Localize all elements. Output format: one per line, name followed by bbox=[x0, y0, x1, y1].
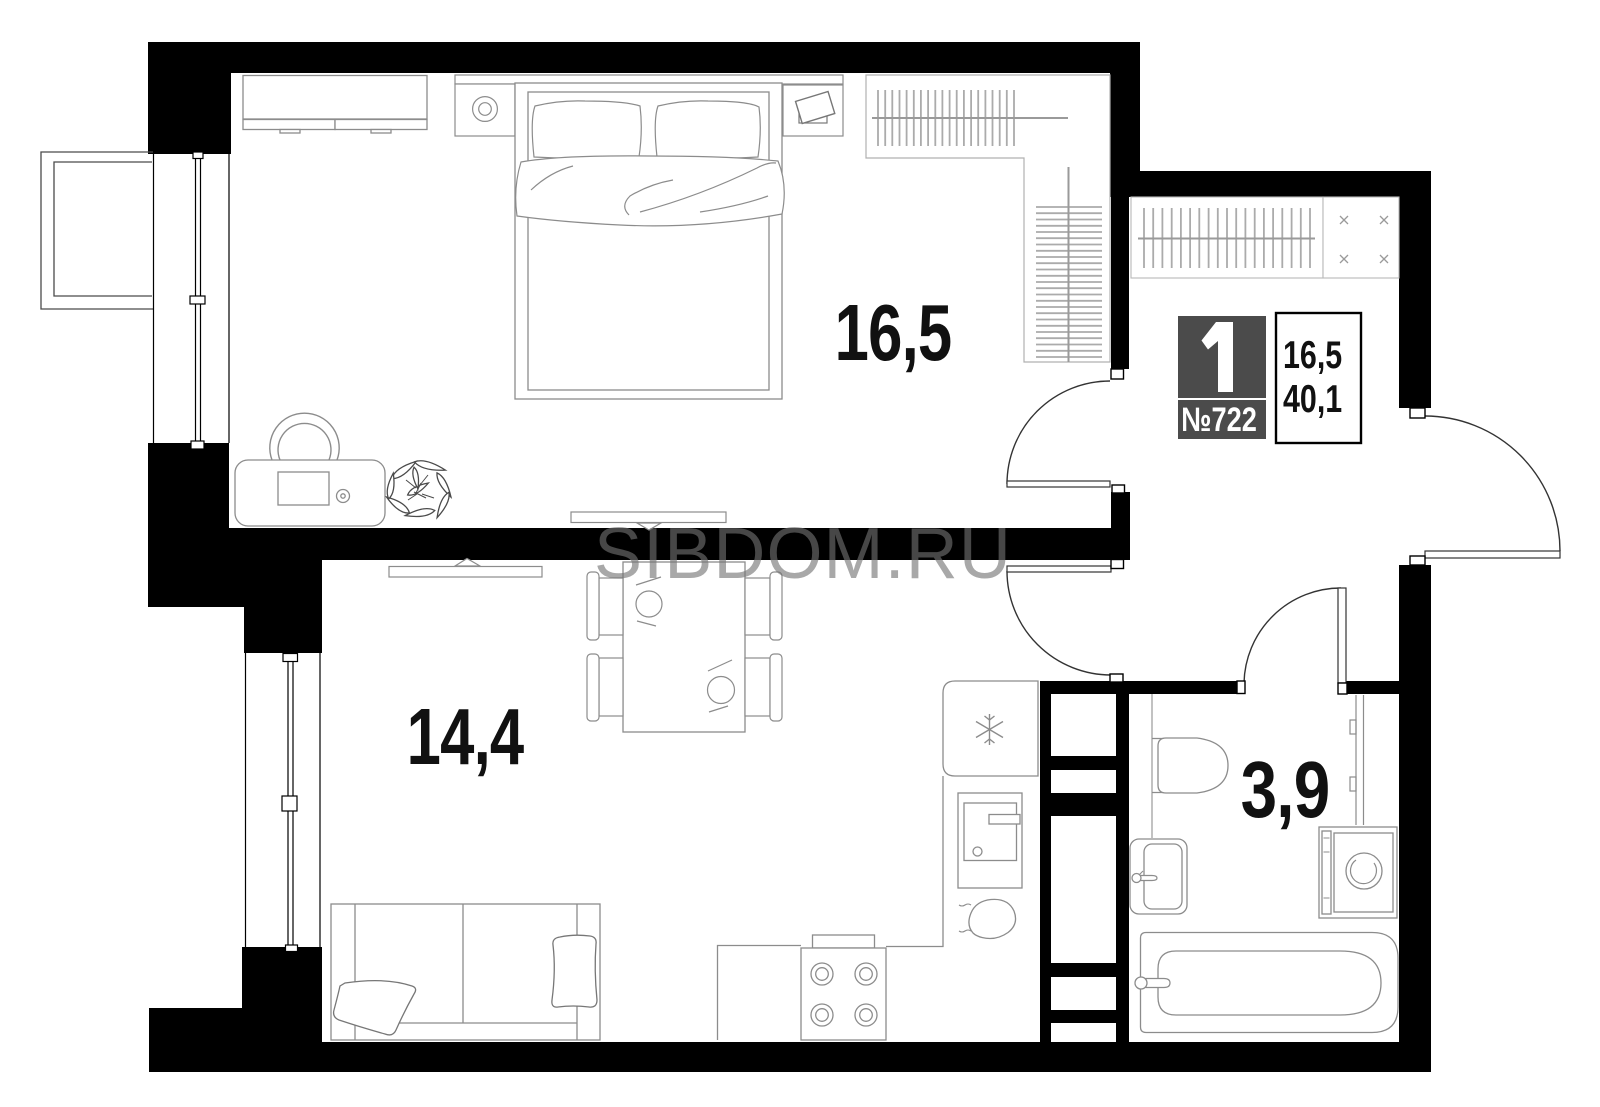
svg-text:40,1: 40,1 bbox=[1283, 377, 1342, 420]
svg-text:SIBDOM.RU: SIBDOM.RU bbox=[594, 514, 1012, 594]
svg-text:16,5: 16,5 bbox=[1283, 333, 1342, 376]
svg-text:№722: №722 bbox=[1181, 400, 1257, 439]
svg-text:3,9: 3,9 bbox=[1241, 745, 1330, 835]
svg-text:16,5: 16,5 bbox=[835, 288, 952, 378]
svg-text:14,4: 14,4 bbox=[407, 692, 525, 782]
